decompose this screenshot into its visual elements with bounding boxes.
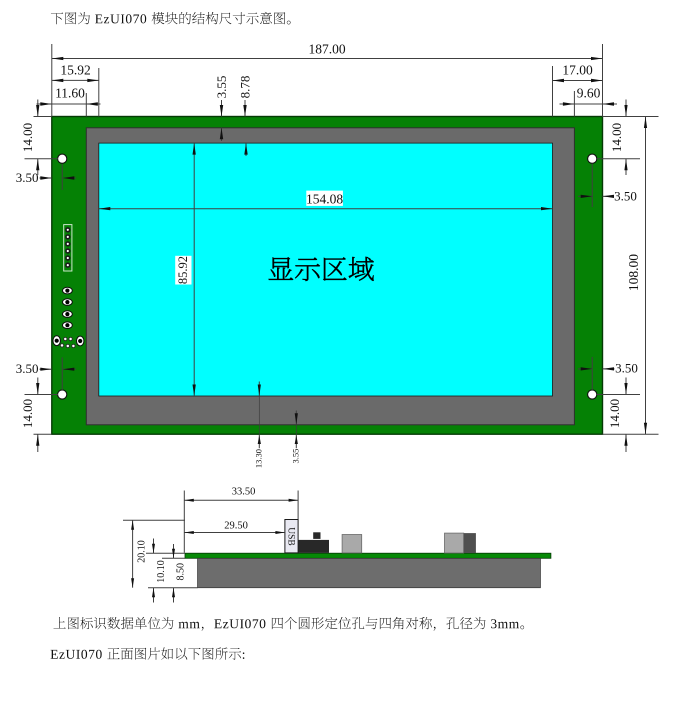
- svg-text:20.10: 20.10: [136, 540, 147, 563]
- svg-text:17.00: 17.00: [562, 63, 593, 78]
- svg-text:3.55: 3.55: [291, 449, 301, 464]
- svg-text:11.60: 11.60: [55, 85, 85, 100]
- svg-text:29.50: 29.50: [224, 521, 248, 532]
- svg-text:3.50: 3.50: [16, 361, 39, 376]
- svg-text:3.50: 3.50: [615, 361, 638, 376]
- svg-text:14.00: 14.00: [609, 123, 624, 152]
- svg-text:108.00: 108.00: [626, 254, 641, 291]
- svg-text:14.00: 14.00: [607, 399, 622, 428]
- svg-text:13.30: 13.30: [254, 449, 264, 468]
- svg-text:8.78: 8.78: [238, 76, 253, 99]
- svg-text:9.60: 9.60: [577, 86, 601, 101]
- svg-text:14.00: 14.00: [20, 399, 35, 428]
- svg-text:10.10: 10.10: [156, 560, 167, 583]
- svg-text:33.50: 33.50: [232, 487, 256, 498]
- svg-text:8.50: 8.50: [176, 563, 187, 581]
- svg-text:85.92: 85.92: [176, 256, 190, 284]
- svg-text:15.92: 15.92: [60, 63, 90, 78]
- svg-text:3.55: 3.55: [214, 76, 229, 99]
- svg-text:3.50: 3.50: [614, 189, 637, 204]
- svg-text:3.50: 3.50: [16, 170, 39, 185]
- svg-text:14.00: 14.00: [20, 123, 35, 152]
- svg-text:187.00: 187.00: [308, 42, 345, 57]
- svg-text:154.08: 154.08: [306, 192, 343, 207]
- svg-text:USB: USB: [285, 527, 295, 545]
